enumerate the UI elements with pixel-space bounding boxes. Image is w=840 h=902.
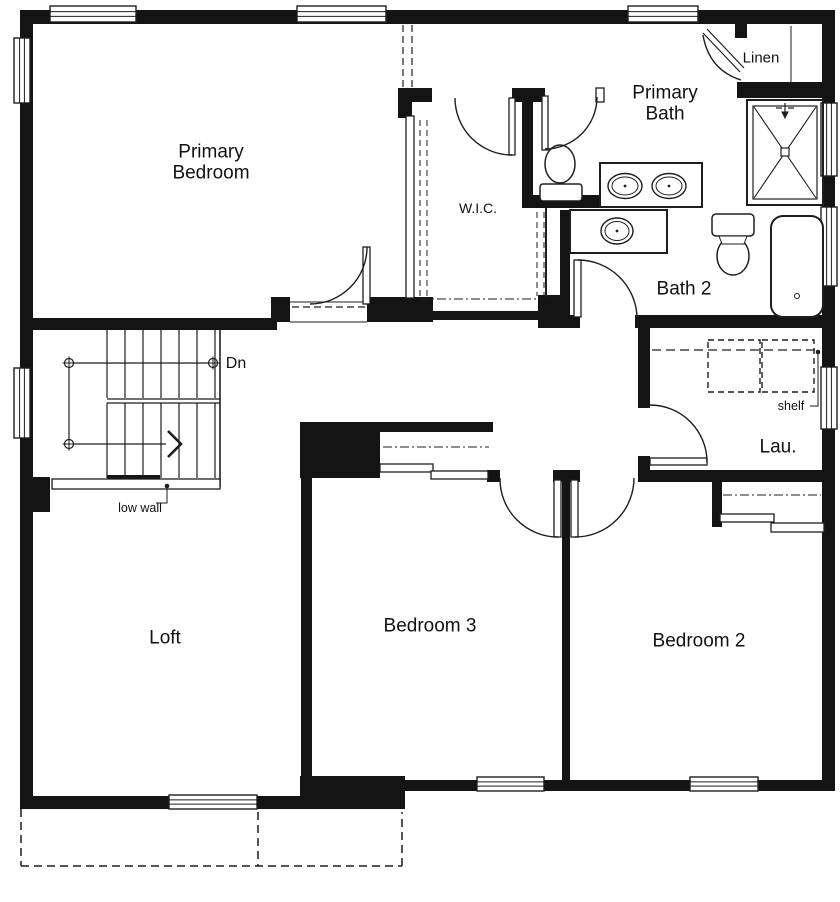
floor-plan-svg [0, 0, 840, 902]
room-label-bath-2: Bath 2 [624, 278, 744, 299]
room-label-primary-bath: Primary Bath [615, 83, 715, 126]
room-label-bedroom-2: Bedroom 2 [619, 630, 779, 651]
annotation-shelf: shelf [771, 399, 811, 413]
annotation-low-wall: low wall [118, 501, 162, 515]
room-label-primary-bedroom: Primary Bedroom [161, 142, 261, 185]
room-label-linen: Linen [731, 51, 791, 68]
room-label-wic: W.I.C. [448, 201, 508, 217]
room-label-laundry: Lau. [748, 436, 808, 457]
floor-plan: Primary Bedroom W.I.C. Primary Bath Line… [0, 0, 840, 902]
annotation-stairs-down: Dn [216, 355, 256, 373]
room-label-loft: Loft [125, 627, 205, 648]
room-label-bedroom-3: Bedroom 3 [350, 615, 510, 636]
